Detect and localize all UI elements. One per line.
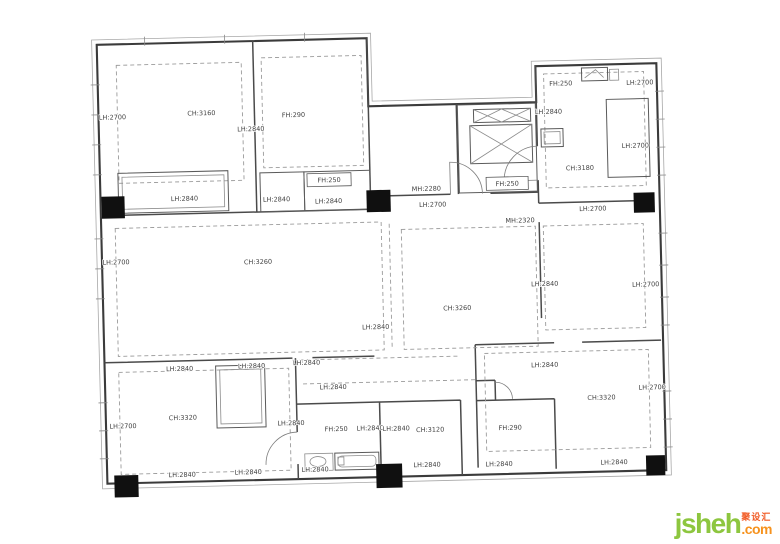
structural-column (633, 192, 654, 213)
floor-plan-page: FH:250FH:250 LH:2700CH:3160LH:2840FH:290… (0, 0, 780, 544)
dimension-label: LH:2840 (531, 280, 558, 289)
dimension-label: LH:2840 (600, 458, 627, 467)
dimension-label: LH:2700 (109, 422, 136, 431)
structural-columns (101, 183, 665, 498)
dimension-label: LH:2700 (419, 200, 446, 209)
dimension-label: LH:2840 (293, 358, 320, 367)
dimension-label: LH:2840 (531, 361, 558, 370)
dimension-label: LH:2840 (169, 471, 196, 480)
dimension-label: CH:3120 (416, 425, 444, 434)
door-swings (258, 146, 545, 465)
dimension-label: FH:250 (496, 180, 519, 189)
counter-fixture (581, 67, 618, 81)
dimension-label: LH:2840 (413, 461, 440, 470)
dimension-label: LH:2840 (238, 362, 265, 371)
floor-plan-canvas: FH:250FH:250 LH:2700CH:3160LH:2840FH:290… (0, 0, 780, 544)
dimension-label: FH:250 (549, 79, 572, 88)
entry-door (450, 161, 483, 194)
structural-column (114, 475, 139, 498)
watermark-brand-text: jsheh (675, 510, 741, 538)
dimension-label: LH:2840 (166, 365, 193, 374)
structural-column (366, 190, 391, 213)
bathtub (335, 452, 379, 470)
dimension-label: LH:2840 (263, 195, 290, 204)
dimension-label: LH:2840 (277, 419, 304, 428)
dimension-label: MH:2280 (412, 184, 441, 193)
dimension-label: LH:2700 (639, 383, 666, 392)
dimension-label: CH:3260 (443, 304, 471, 313)
dimension-label: LH:2840 (535, 108, 562, 117)
structural-column (376, 464, 403, 489)
dimension-label: LH:2700 (99, 113, 126, 122)
dimension-label: FH:290 (282, 111, 305, 120)
dimension-label: CH:3320 (587, 393, 615, 402)
structural-column (101, 196, 125, 219)
dimension-label: LH:2840 (319, 383, 346, 392)
dimension-label: LH:2840 (234, 468, 261, 477)
dimension-label: LH:2840 (362, 323, 389, 332)
stair-shaft (473, 108, 530, 122)
dimension-label: CH:3180 (566, 164, 594, 173)
dimension-labels: LH:2700CH:3160LH:2840FH:290LH:2840LH:284… (98, 77, 668, 481)
dimension-label: LH:2840 (485, 460, 512, 469)
dimension-label: CH:3320 (169, 414, 197, 423)
dimension-label: LH:2840 (356, 424, 383, 433)
watermark-tld-text: .com (741, 522, 772, 536)
dimension-label: FH:290 (498, 424, 521, 433)
jsheh-watermark: jsheh 聚设汇 .com (675, 510, 772, 538)
dimension-label: FH:250 (324, 425, 347, 434)
structural-column (646, 455, 665, 475)
dimension-label: CH:3260 (244, 258, 272, 267)
floor-plan: FH:250FH:250 LH:2700CH:3160LH:2840FH:290… (90, 24, 674, 498)
dimension-label: LH:2700 (579, 204, 606, 213)
dimension-label: LH:2700 (102, 258, 129, 267)
dimension-label: LH:2700 (632, 280, 659, 289)
dimension-label: LH:2840 (301, 465, 328, 474)
dimension-label: LH:2840 (237, 125, 264, 134)
dimension-label: LH:2840 (315, 197, 342, 206)
dimension-label: CH:3160 (187, 109, 215, 118)
dimension-label: LH:2840 (382, 424, 409, 433)
dimension-label: LH:2700 (626, 78, 653, 87)
dimension-label: LH:2700 (622, 141, 649, 150)
dimension-label: LH:2840 (171, 194, 198, 203)
dimension-label: FH:250 (317, 176, 340, 185)
dimension-label: MH:2320 (505, 216, 534, 225)
window-ticks (90, 24, 673, 461)
wardrobes (116, 98, 656, 430)
